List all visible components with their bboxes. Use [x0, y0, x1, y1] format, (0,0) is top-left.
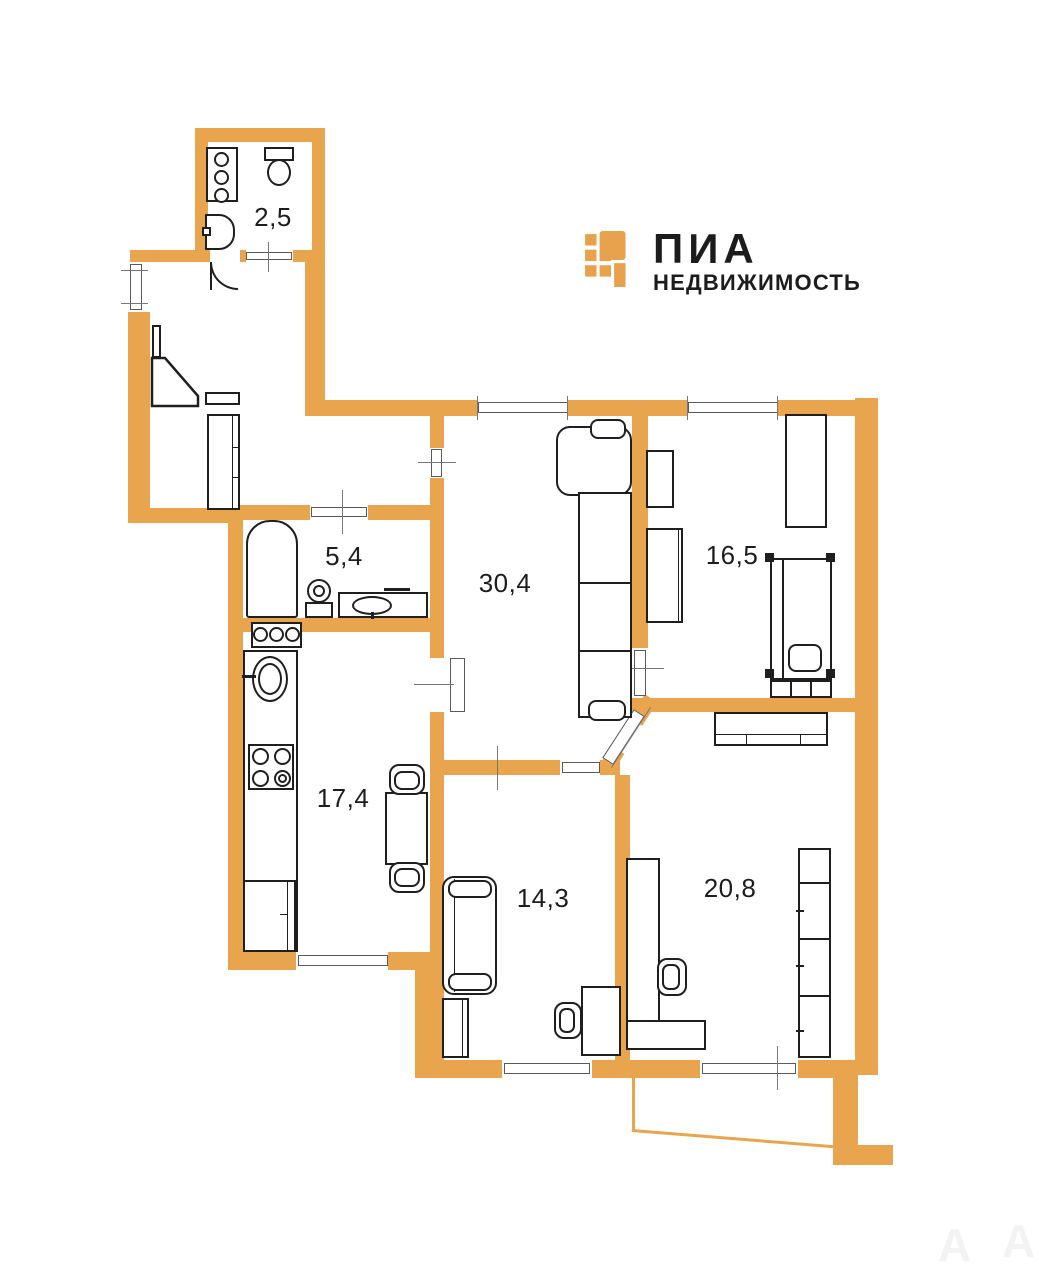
window [702, 1063, 796, 1074]
kitchen-sink-inner [258, 663, 282, 695]
hob-burner [253, 627, 268, 642]
wall-segment [305, 262, 325, 402]
sofa-pillow [590, 419, 626, 439]
balcony-outline [632, 1078, 635, 1132]
window [688, 402, 778, 413]
window-tick [121, 303, 148, 304]
tv-stand-line [746, 735, 747, 744]
wall-segment [130, 250, 210, 262]
window-tick [777, 1046, 778, 1090]
hob-burner [269, 627, 284, 642]
toilet-bowl [267, 159, 291, 186]
washing-machine-knob [214, 188, 229, 203]
entrance-door [246, 252, 292, 260]
wall-segment [195, 128, 325, 142]
tv-stand [714, 712, 828, 746]
brand-tagline: НЕДВИЖИМОСТЬ [653, 270, 861, 296]
chair-seat [559, 1008, 575, 1033]
drawer-line [790, 682, 792, 696]
sofa-section-line [580, 582, 630, 584]
wall-segment [615, 1060, 700, 1078]
desk-return [626, 1020, 706, 1050]
room-label-bedroom: 16,5 [689, 539, 775, 571]
wall-segment [228, 952, 296, 970]
room-label-bathroom: 5,4 [301, 540, 387, 572]
tv-stand-line [716, 734, 826, 735]
wardrobe-notch [796, 910, 804, 912]
faucet [384, 588, 410, 591]
wall-segment [228, 508, 243, 970]
washing-machine-knob [214, 170, 229, 185]
door-leaf [431, 449, 442, 477]
chair-seat [394, 868, 420, 887]
window [504, 1063, 590, 1074]
door-opening [311, 507, 367, 517]
wall-segment [230, 505, 310, 520]
corner-sofa-body [578, 492, 632, 718]
wall-segment [430, 1060, 502, 1078]
wardrobe-line [800, 938, 829, 940]
window [298, 955, 388, 966]
window [478, 402, 568, 413]
kitchen-cabinet [243, 880, 296, 952]
window-tick [477, 396, 478, 420]
wardrobe-line [233, 447, 240, 448]
door-tick [497, 746, 498, 790]
stove-burner [252, 770, 269, 787]
door-tick [414, 684, 454, 685]
desk [581, 986, 621, 1056]
wall-segment [368, 505, 444, 520]
shelf [646, 450, 674, 508]
hall-wardrobe [207, 414, 240, 510]
stove-burner [274, 748, 291, 765]
sofa-section-line [580, 650, 630, 652]
room-label-kitchen: 17,4 [300, 782, 386, 814]
cabinet-line [280, 914, 288, 915]
wardrobe-line [233, 477, 240, 478]
tv-stand-line [800, 735, 801, 744]
drawer-line [810, 682, 812, 696]
bathtub [246, 520, 298, 618]
watermark-letter: А [1002, 1214, 1035, 1268]
wall-segment [430, 415, 444, 448]
floor-plan: ПИА НЕДВИЖИМОСТЬ [0, 0, 1039, 1280]
stove-burner [252, 748, 269, 765]
sofa-armrest [448, 973, 492, 991]
wall-segment [430, 760, 560, 775]
room-label-room20: 20,8 [687, 872, 773, 904]
wall-segment [858, 1145, 893, 1165]
bed-drawers [770, 680, 832, 698]
door-leaf [634, 650, 646, 696]
toilet-bowl-inner [313, 585, 325, 597]
wall-segment [632, 698, 878, 712]
wall-segment [312, 128, 325, 262]
door-swing-arc [210, 262, 238, 290]
door-opening [562, 762, 600, 773]
wall-segment [855, 398, 878, 1075]
wall-segment [568, 400, 688, 416]
room-label-wc: 2,5 [230, 201, 316, 233]
door-leaf [450, 658, 465, 712]
sink-tap [202, 227, 211, 236]
wardrobe-notch [796, 965, 804, 967]
bed-post [765, 669, 774, 678]
wall-segment [293, 250, 325, 262]
corner-wardrobe [150, 356, 200, 408]
wardrobe [785, 414, 827, 528]
sofa-pillow [588, 700, 626, 721]
chair-seat [662, 964, 680, 990]
door-tick [268, 242, 269, 272]
faucet [242, 675, 256, 678]
hall-shelf [152, 325, 161, 358]
balcony-outline [632, 1129, 844, 1149]
cabinet-line [462, 1000, 463, 1056]
brand-name: ПИА [653, 231, 861, 267]
door-tick [418, 462, 456, 463]
bed-pillow [788, 644, 822, 672]
stove-burner-inner [278, 774, 287, 783]
brand-logo: ПИА НЕДВИЖИМОСТЬ [585, 231, 861, 296]
window-tick [121, 270, 148, 271]
wardrobe [798, 848, 831, 1058]
wall-segment [128, 312, 150, 523]
hob-burner [285, 627, 300, 642]
window-tick [567, 396, 568, 420]
window-tick [777, 396, 778, 420]
room-label-living: 30,4 [462, 567, 548, 599]
wardrobe-notch [796, 1030, 804, 1032]
wall-segment [833, 1075, 858, 1165]
watermark-letter: А [938, 1218, 971, 1272]
chair-seat [394, 771, 420, 790]
vanity-drain [371, 612, 374, 619]
wardrobe-line [232, 416, 233, 508]
room-label-room14: 14,3 [500, 882, 586, 914]
sofa-armrest [448, 880, 492, 898]
desk-line [678, 530, 679, 621]
cabinet-line [287, 882, 288, 950]
door-tick [342, 490, 343, 534]
desk [626, 858, 660, 1022]
wardrobe-line [800, 882, 829, 884]
bed-post [826, 553, 835, 562]
wall-segment [388, 952, 444, 970]
wardrobe-line [800, 995, 829, 997]
pia-logo-icon [585, 231, 637, 287]
wall-segment [305, 400, 478, 416]
washing-machine-knob [214, 152, 229, 167]
dining-table [385, 792, 428, 865]
cabinet [442, 998, 469, 1058]
window-tick [687, 396, 688, 420]
bed-rail [782, 560, 784, 678]
hall-shelf [205, 392, 240, 405]
toilet-base [305, 602, 333, 618]
wall-segment [128, 508, 243, 523]
bed-post [826, 669, 835, 678]
